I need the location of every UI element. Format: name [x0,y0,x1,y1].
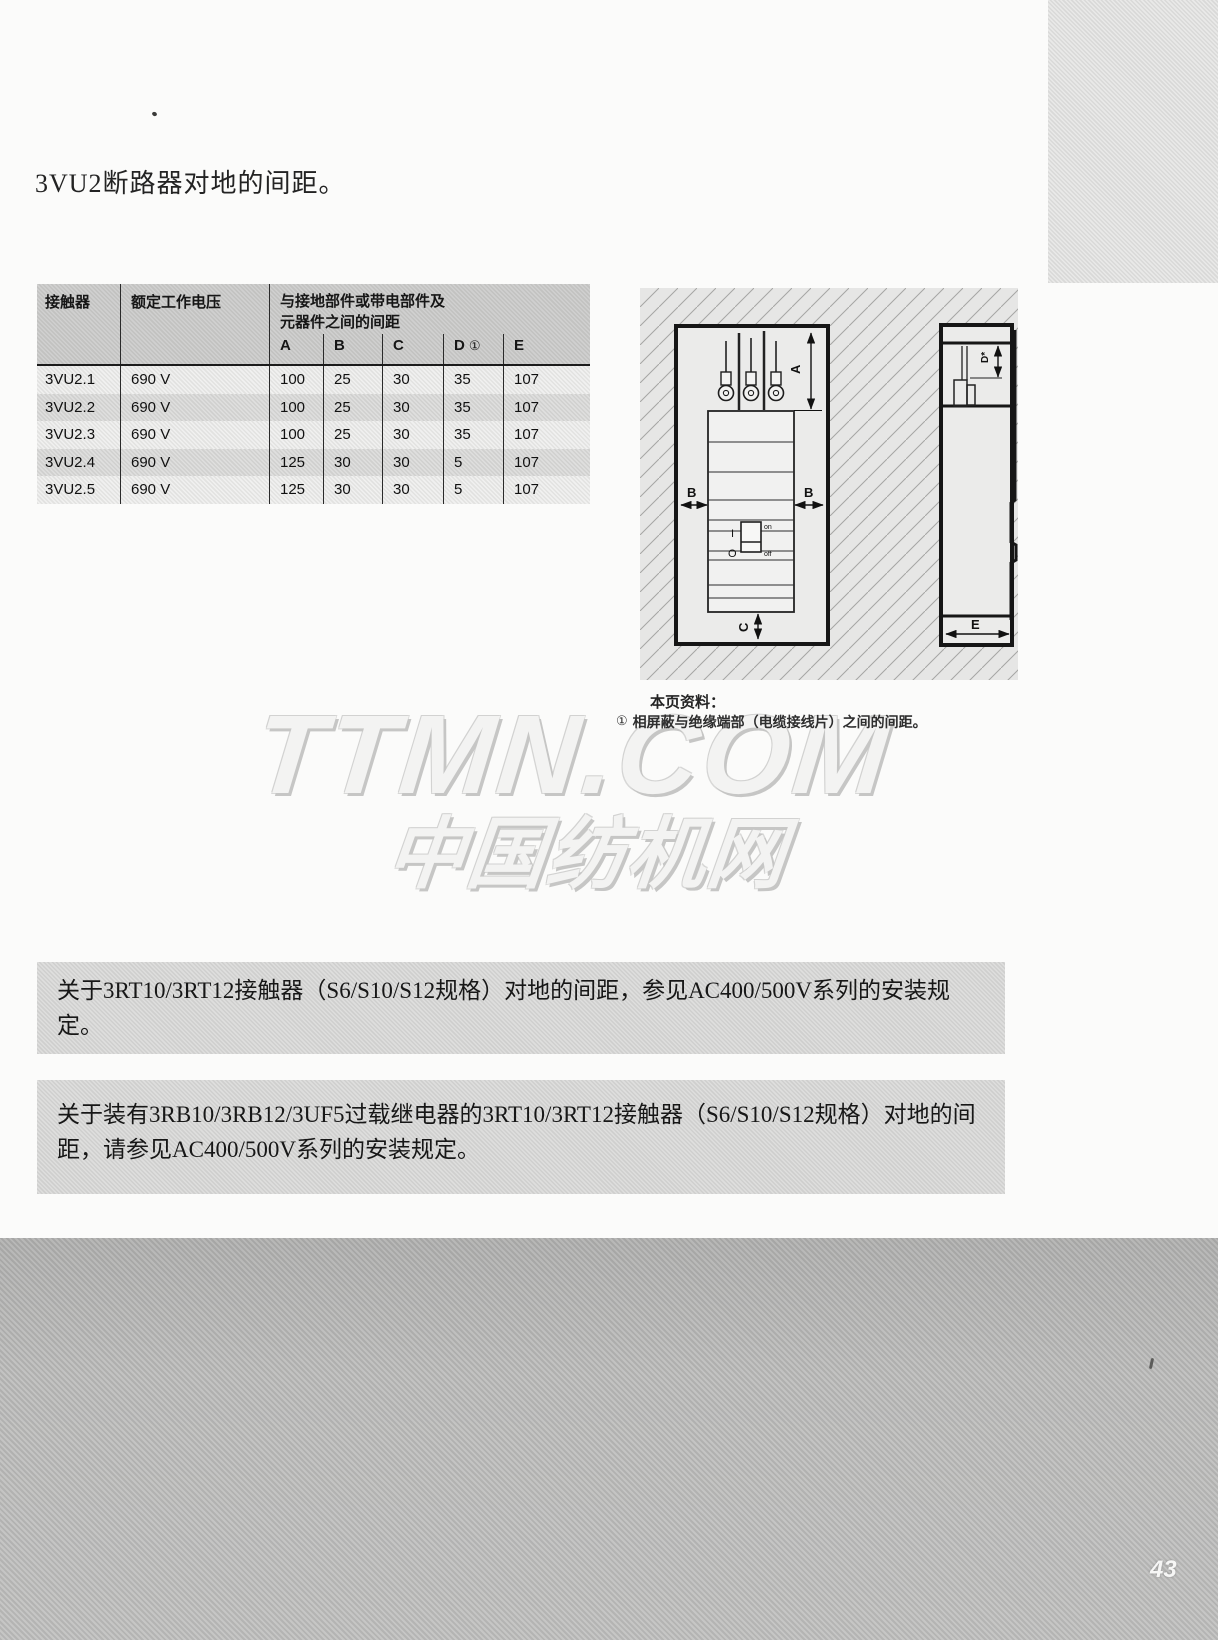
cell-voltage: 690 V [120,449,269,477]
paragraph-1-text: 关于3RT10/3RT12接触器（S6/S10/S12规格）对地的间距，参见AC… [57,978,950,1038]
header-clearance-line1: 与接地部件或带电部件及 [280,291,590,312]
cell-d: 5 [443,449,503,477]
page-title: 3VU2断路器对地的间距。 [35,163,346,200]
scan-speck [151,111,157,117]
cell-d: 35 [443,421,503,449]
cell-b: 30 [323,476,382,504]
table-row: 3VU2.1 690 V 100 25 30 35 107 [37,366,590,394]
cell-e: 107 [503,394,590,422]
cell-c: 30 [382,476,443,504]
toggle-on-label: I [731,528,734,540]
side-view: D* E [941,325,1016,645]
scan-gray-band-bottom [0,1238,1218,1640]
header-col-c: C [382,334,443,364]
cell-c: 30 [382,366,443,394]
cell-b: 30 [323,449,382,477]
cell-model: 3VU2.1 [37,371,120,388]
header-col-a: A [269,334,323,364]
col-e-label: E [514,337,524,354]
col-d-label: D [454,337,465,354]
cell-a: 100 [269,394,323,422]
table-row: 3VU2.3 690 V 100 25 30 35 107 [37,421,590,449]
toggle-switch [741,522,761,552]
cell-model: 3VU2.3 [37,426,120,443]
cell-a: 100 [269,366,323,394]
cell-d: 5 [443,476,503,504]
footnote: ① 相屏蔽与绝缘端部（电缆接线片）之间的间距。 [616,712,927,732]
clearance-diagram: I on O off A B B C D* [640,288,1018,680]
on-label: on [764,524,772,531]
dim-b-right-label: B [804,485,813,500]
header-col-b: B [323,334,382,364]
dim-b-left-label: B [687,485,696,500]
cable-lugs [719,372,784,401]
cell-a: 125 [269,476,323,504]
cell-c: 30 [382,394,443,422]
paragraph-block-1: 关于3RT10/3RT12接触器（S6/S10/S12规格）对地的间距，参见AC… [37,962,1005,1054]
header-col-d: D① [443,334,503,364]
catalog-page: { "page": { "title": "3VU2断路器对地的间距。", "p… [0,0,1218,1640]
off-label: off [764,551,772,558]
scan-gray-band-top-right [1048,0,1218,283]
footnote-mark-icon: ① [469,338,481,353]
breaker-body [708,411,794,612]
side-enclosure [941,325,1012,645]
footnote-text: 相屏蔽与绝缘端部（电缆接线片）之间的间距。 [633,712,927,732]
cell-a: 100 [269,421,323,449]
header-col-e: E [503,334,590,364]
cell-d: 35 [443,366,503,394]
page-number: 43 [1150,1556,1177,1584]
cell-e: 107 [503,449,590,477]
note-heading: 本页资料： [650,691,725,712]
cell-voltage: 690 V [120,476,269,504]
cell-model: 3VU2.5 [37,481,120,498]
header-contactor: 接触器 [37,284,120,364]
cell-c: 30 [382,449,443,477]
paragraph-2-text: 关于装有3RB10/3RB12/3UF5过载继电器的3RT10/3RT12接触器… [57,1102,976,1162]
cell-a: 125 [269,449,323,477]
dim-c-label: C [736,622,751,632]
header-clearance-line2: 元器件之间的间距 [280,312,590,333]
cell-voltage: 690 V [120,366,269,394]
header-clearance-group: 与接地部件或带电部件及 元器件之间的间距 [269,284,590,334]
cell-b: 25 [323,366,382,394]
clearance-table: 接触器 额定工作电压 与接地部件或带电部件及 元器件之间的间距 A B C D①… [37,284,590,504]
cell-b: 25 [323,394,382,422]
toggle-off-label: O [728,548,737,560]
header-voltage: 额定工作电压 [120,284,269,364]
table-row: 3VU2.5 690 V 125 30 30 5 107 [37,476,590,504]
cell-voltage: 690 V [120,421,269,449]
cell-e: 107 [503,476,590,504]
front-view: I on O off A B B C [676,326,828,644]
cell-d: 35 [443,394,503,422]
table-row: 3VU2.4 690 V 125 30 30 5 107 [37,449,590,477]
paragraph-block-2: 关于装有3RB10/3RB12/3UF5过载继电器的3RT10/3RT12接触器… [37,1080,1005,1194]
cell-e: 107 [503,421,590,449]
col-a-label: A [280,337,291,354]
dim-d-label: D* [980,352,991,363]
cell-model: 3VU2.4 [37,454,120,471]
dim-a-label: A [788,364,803,374]
cell-model: 3VU2.2 [37,399,120,416]
dim-e-label: E [971,617,980,632]
footnote-mark-icon: ① [616,712,628,729]
col-c-label: C [393,337,404,354]
cell-c: 30 [382,421,443,449]
cell-voltage: 690 V [120,394,269,422]
watermark-line2: 中国纺机网 [382,792,794,904]
cell-e: 107 [503,366,590,394]
col-b-label: B [334,337,345,354]
table-header: 接触器 额定工作电压 与接地部件或带电部件及 元器件之间的间距 A B C D①… [37,284,590,366]
cell-b: 25 [323,421,382,449]
table-row: 3VU2.2 690 V 100 25 30 35 107 [37,394,590,422]
